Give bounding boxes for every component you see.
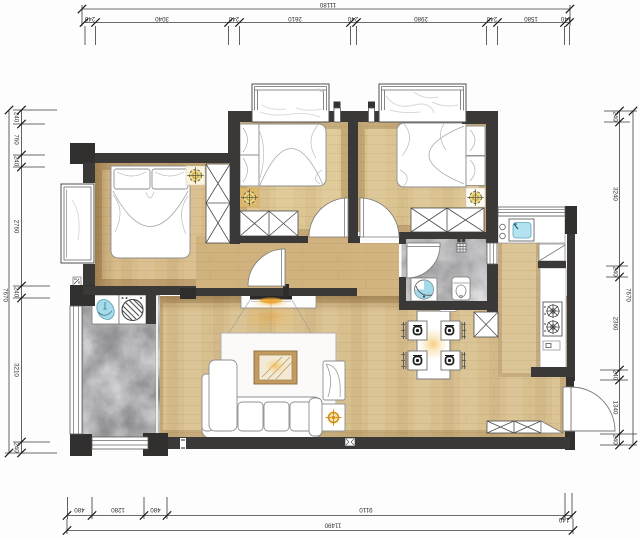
- svg-text:240: 240: [13, 287, 20, 298]
- svg-text:11180: 11180: [319, 1, 336, 8]
- svg-text:240: 240: [612, 434, 619, 445]
- svg-text:3210: 3210: [13, 363, 20, 377]
- svg-text:11490: 11490: [324, 522, 341, 529]
- svg-text:240: 240: [347, 15, 358, 22]
- svg-text:240: 240: [612, 370, 619, 381]
- svg-text:1280: 1280: [111, 506, 125, 513]
- svg-text:2980: 2980: [414, 15, 428, 22]
- svg-text:480: 480: [150, 506, 161, 513]
- svg-text:240: 240: [612, 266, 619, 277]
- svg-text:240: 240: [13, 156, 20, 167]
- svg-text:2610: 2610: [288, 15, 302, 22]
- svg-text:140: 140: [558, 516, 569, 523]
- svg-text:240: 240: [612, 111, 619, 122]
- svg-text:7670: 7670: [625, 288, 632, 302]
- svg-text:240: 240: [228, 15, 239, 22]
- svg-text:480: 480: [74, 506, 85, 513]
- svg-text:140: 140: [560, 15, 571, 22]
- svg-text:240: 240: [84, 15, 95, 22]
- svg-text:2360: 2360: [612, 317, 619, 331]
- svg-text:240: 240: [13, 112, 20, 123]
- svg-text:2760: 2760: [13, 220, 20, 234]
- svg-text:760: 760: [13, 134, 20, 145]
- svg-text:1580: 1580: [524, 15, 538, 22]
- svg-text:7670: 7670: [2, 288, 9, 302]
- svg-text:3040: 3040: [155, 15, 169, 22]
- svg-text:9110: 9110: [359, 506, 373, 513]
- svg-text:3240: 3240: [612, 187, 619, 201]
- svg-text:240: 240: [13, 442, 20, 453]
- svg-text:240: 240: [486, 15, 497, 22]
- svg-text:1340: 1340: [612, 401, 619, 415]
